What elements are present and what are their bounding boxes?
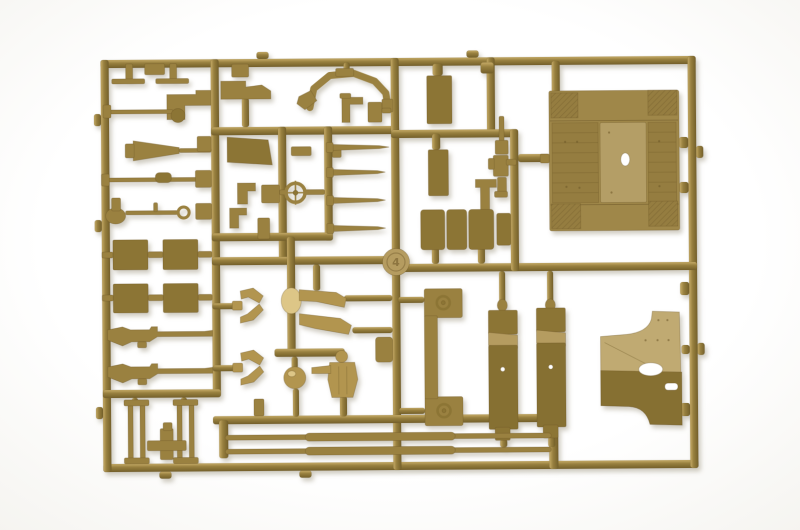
floor-panel-rivets-7 — [658, 185, 660, 187]
floor-panel-rivets-5 — [610, 191, 612, 193]
strut-2-cap-bottom — [173, 457, 198, 463]
floor-panel-rivets-2 — [565, 186, 567, 188]
rod-part-2 — [103, 177, 199, 182]
nub-top-1 — [257, 52, 269, 59]
strut-1-rail-b — [140, 404, 145, 460]
crate-gate-2r — [198, 294, 212, 300]
photo-canvas: 4 — [0, 0, 800, 530]
helmet-ball — [284, 367, 306, 389]
stub-ubracket-top — [398, 297, 424, 303]
stub-legs-right-1 — [344, 295, 392, 301]
block-right-stub — [382, 108, 391, 113]
crate-gate-2l — [102, 295, 113, 301]
l-tube-flange — [340, 93, 351, 98]
stub-panel-right-1 — [679, 137, 688, 148]
rod-part-1-end — [103, 105, 111, 118]
steering-wheel-hub — [293, 190, 298, 195]
pedal-stem-2 — [170, 64, 177, 80]
fender-2-lower — [537, 343, 567, 427]
spike-2-base — [326, 167, 333, 177]
mg-barrel — [499, 116, 504, 141]
crate-link-1 — [148, 252, 163, 258]
nub-bottom-1 — [159, 472, 171, 479]
axle-rod-1-mid — [305, 432, 455, 441]
spike-4-base — [327, 223, 334, 233]
stub-bench-2 — [478, 247, 485, 263]
strut-2-rail-a — [177, 404, 182, 460]
stub-bench-1 — [432, 248, 439, 264]
fender-2-hole — [549, 365, 553, 369]
strut-1-rail-a — [128, 404, 133, 460]
side-panel-hole — [639, 363, 663, 376]
stub-hood — [242, 98, 249, 127]
crate-gate-1r — [198, 251, 212, 257]
bench-slat-3 — [469, 209, 494, 249]
floor-panel-rivets-1 — [576, 141, 578, 143]
nub-top-2 — [467, 50, 479, 57]
stub-legs-right-2 — [352, 327, 392, 333]
mg-sight — [495, 140, 508, 154]
arms-pair-1-stub — [232, 301, 242, 310]
u-bracket-boss-bottom-dot — [442, 409, 446, 413]
mg-magazine — [488, 158, 494, 169]
helmet-highlight — [288, 371, 296, 377]
radiator-panel-2 — [428, 150, 448, 196]
pedal-stem-1 — [126, 64, 133, 80]
nub-left-2 — [95, 220, 102, 232]
runner-panel-top-stub — [552, 61, 560, 93]
u-bracket-boss-top-dot — [441, 301, 445, 305]
crate-1b — [163, 239, 198, 269]
side-panel-slot — [665, 383, 678, 390]
bench-slat-2 — [447, 210, 467, 250]
nub-right-2 — [698, 343, 705, 355]
crate-2b — [163, 283, 198, 312]
rod-part-1-knob — [171, 108, 185, 122]
spike-3-base — [327, 195, 334, 205]
stub-ubracket-bottom — [399, 408, 425, 414]
block-frame-right-1 — [680, 282, 689, 295]
mid-top-block — [232, 64, 249, 77]
fender-2-top — [536, 308, 565, 332]
floor-panel-rivets-0 — [564, 141, 566, 143]
mg-grip — [497, 177, 506, 192]
cone-collar — [125, 144, 134, 158]
strut-2-rail-b — [189, 403, 194, 459]
rod-part-2-block — [195, 170, 211, 187]
floor-panel-pad-bl-texture — [552, 204, 581, 229]
block-d1-top — [481, 62, 494, 73]
axle-rod-2-mid — [305, 446, 455, 455]
stub-radiator1-top — [433, 64, 443, 76]
radiator-panel-1 — [427, 76, 452, 124]
floor-panel-rivets-4 — [608, 131, 610, 133]
sprue-svg: 4 — [0, 0, 800, 530]
cross-part-tab — [163, 423, 172, 431]
rod-part-3-tick — [154, 203, 158, 212]
runner-mid-h2 — [212, 232, 333, 241]
u-bracket-web — [424, 316, 438, 399]
stub-legs-top — [313, 265, 320, 291]
runner-fig-h — [275, 348, 345, 356]
floor-panel-hole — [621, 153, 630, 166]
stub-fender2-bottom — [548, 437, 555, 447]
fender-1-top — [488, 310, 517, 334]
box-near-d2 — [497, 213, 511, 245]
pedal-foot-1 — [112, 79, 145, 84]
floor-panel-gate-left — [540, 154, 549, 163]
windshield-panel — [227, 137, 272, 165]
torso-head — [336, 350, 348, 362]
pouch-part — [376, 337, 393, 362]
small-block-top — [145, 64, 165, 75]
cone-block — [197, 136, 211, 151]
mold-number: 4 — [392, 256, 400, 269]
runner-mid-top-h — [211, 126, 399, 135]
rifle-1-magazine — [138, 342, 147, 348]
stub-radiator2-top — [432, 134, 440, 150]
scoop-neck — [112, 198, 121, 211]
crate-link-2 — [148, 295, 163, 301]
fender-1-knob — [497, 299, 507, 311]
floor-panel-pad-tl-texture — [551, 93, 578, 118]
rod-part-2-cylinder — [155, 173, 171, 183]
nub-left-3 — [96, 407, 103, 419]
side-panel-rivets-3 — [656, 339, 658, 341]
nub-left-1 — [94, 114, 101, 126]
gearbox-block — [261, 185, 279, 203]
floor-panel-rivets-6 — [658, 140, 660, 142]
crate-2a — [113, 284, 148, 313]
roll-bar-apex-block — [336, 68, 354, 76]
spike-1-base — [326, 142, 333, 152]
side-panel-rivets-4 — [667, 339, 669, 341]
stub-torso-bottom — [340, 396, 347, 416]
fender-1-lower — [489, 345, 519, 429]
small-part-bottom — [254, 399, 264, 416]
side-panel-rivets-0 — [657, 319, 659, 321]
runner-d2 — [510, 129, 519, 271]
nub-right-1 — [696, 146, 703, 158]
mg-arm — [506, 159, 516, 165]
pedal-foot-2 — [156, 78, 189, 83]
rod-part-1 — [107, 110, 173, 114]
nub-bottom-2 — [299, 471, 311, 478]
mg-stock — [494, 191, 507, 197]
crate-1a — [113, 240, 148, 270]
strut-2-cap-top — [173, 399, 198, 405]
fender-1-hole — [501, 367, 505, 371]
crate-gate-1l — [102, 252, 113, 258]
small-connector — [291, 147, 311, 156]
cross-part-h — [147, 440, 186, 450]
figure-hip-plate — [281, 288, 301, 314]
mg-receiver — [493, 155, 508, 176]
hook-block — [196, 203, 212, 219]
runner-mid-h3 — [212, 256, 400, 265]
arms-pair-2-stub — [233, 363, 243, 372]
rod-part-3 — [126, 211, 178, 215]
side-panel-rivets-2 — [644, 339, 646, 341]
torso-body — [328, 362, 358, 397]
bench-slat-1 — [421, 210, 445, 250]
stub-helmet-bottom — [293, 389, 299, 417]
floor-panel-pad-br-texture — [649, 201, 678, 226]
runner-left-h — [103, 389, 221, 398]
strut-1-cap-bottom — [124, 458, 149, 464]
side-panel-rivets-1 — [666, 319, 668, 321]
rifle-2-magazine — [138, 379, 147, 385]
block-right-of-tube — [368, 102, 382, 122]
strut-1-cap-top — [124, 400, 149, 406]
rod-part-2-end — [101, 174, 109, 186]
floor-panel-pad-tr-texture — [648, 90, 677, 115]
stub-sidepanel-right — [682, 345, 690, 354]
stub-panel-right-2 — [679, 182, 688, 193]
v-rect-small — [258, 218, 270, 239]
floor-panel-rivets-3 — [578, 187, 580, 189]
sprue-photo: 4 — [0, 0, 800, 530]
